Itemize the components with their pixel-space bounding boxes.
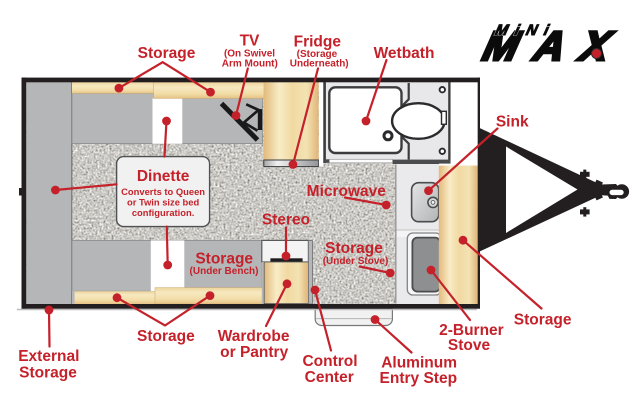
svg-text:or Twin size bed: or Twin size bed [127, 196, 200, 207]
svg-text:Wetbath: Wetbath [374, 45, 435, 62]
svg-text:Control: Control [302, 353, 357, 370]
svg-text:configuration.: configuration. [132, 207, 195, 218]
svg-text:External: External [18, 348, 79, 365]
svg-text:Storage: Storage [138, 45, 196, 62]
svg-text:Fridge: Fridge [294, 33, 342, 50]
svg-text:Sink: Sink [496, 114, 529, 131]
svg-text:TV: TV [240, 32, 260, 49]
svg-text:Dinette: Dinette [137, 168, 190, 185]
svg-text:Aluminum: Aluminum [381, 355, 457, 372]
svg-text:Storage: Storage [137, 328, 195, 345]
svg-text:Microwave: Microwave [307, 183, 387, 200]
svg-text:Arm Mount): Arm Mount) [222, 58, 278, 69]
svg-text:(Under Bench): (Under Bench) [190, 266, 259, 277]
svg-text:Entry Step: Entry Step [380, 370, 458, 387]
svg-text:or Pantry: or Pantry [220, 344, 288, 361]
svg-text:Center: Center [305, 369, 354, 386]
svg-text:Storage: Storage [514, 312, 572, 329]
svg-text:Converts to Queen: Converts to Queen [121, 186, 205, 197]
svg-text:(Under Stove): (Under Stove) [323, 256, 389, 267]
svg-text:Storage: Storage [19, 365, 77, 382]
svg-text:Stove: Stove [448, 337, 491, 354]
svg-text:Stereo: Stereo [262, 212, 310, 229]
svg-text:Wardrobe: Wardrobe [218, 328, 290, 345]
svg-text:Underneath): Underneath) [290, 59, 349, 70]
svg-text:Storage: Storage [325, 240, 383, 257]
